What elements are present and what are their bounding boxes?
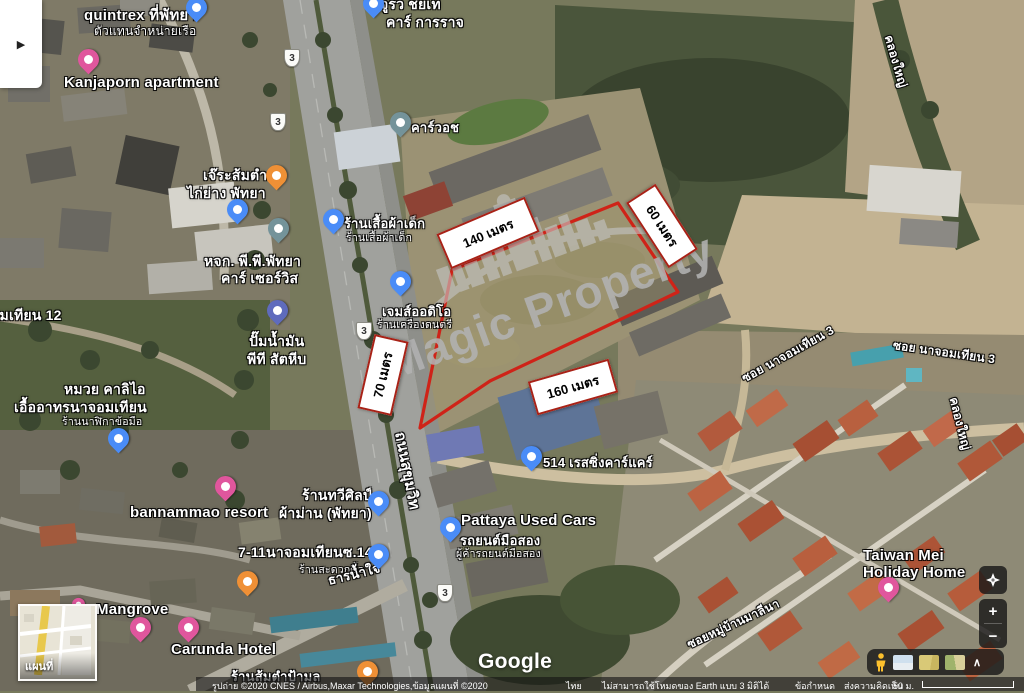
zoom-in-button[interactable]: + [979, 599, 1007, 623]
layer-thumb-map[interactable] [945, 655, 965, 670]
map-inset[interactable]: แผนที่ [18, 604, 97, 681]
attribution-bar: รูปถ่าย ©2020 CNES / Airbus,Maxar Techno… [196, 677, 1024, 691]
satellite-map-view: { "watermark": { "brand": "Magic Propert… [0, 0, 1024, 691]
measurement-label: 160 เมตร [528, 359, 618, 416]
compass-icon [986, 573, 1000, 587]
pegman-icon[interactable] [875, 653, 887, 672]
measurement-label: 60 เมตร [626, 184, 698, 268]
streetview-layers-bar: ∧ [867, 649, 1004, 675]
inset-map-label: แผนที่ [25, 657, 53, 675]
panel-expand-icon: ▶ [17, 38, 25, 51]
measurement-labels-layer: 140 เมตร60 เมตร70 เมตร160 เมตร [0, 0, 1024, 691]
zoom-control: + − [979, 599, 1007, 648]
side-panel-toggle[interactable]: ▶ [0, 0, 42, 88]
measurement-label: 70 เมตร [357, 334, 408, 416]
compass-button[interactable] [979, 566, 1007, 594]
zoom-out-button[interactable]: − [979, 624, 1007, 648]
measurement-label: 140 เมตร [436, 197, 539, 269]
google-logo[interactable]: Google [478, 650, 552, 674]
layer-thumb-terrain[interactable] [919, 655, 939, 670]
collapse-layers-icon[interactable]: ∧ [973, 656, 981, 669]
scale-bar [922, 681, 1014, 688]
layer-thumb-satellite[interactable] [893, 655, 913, 670]
